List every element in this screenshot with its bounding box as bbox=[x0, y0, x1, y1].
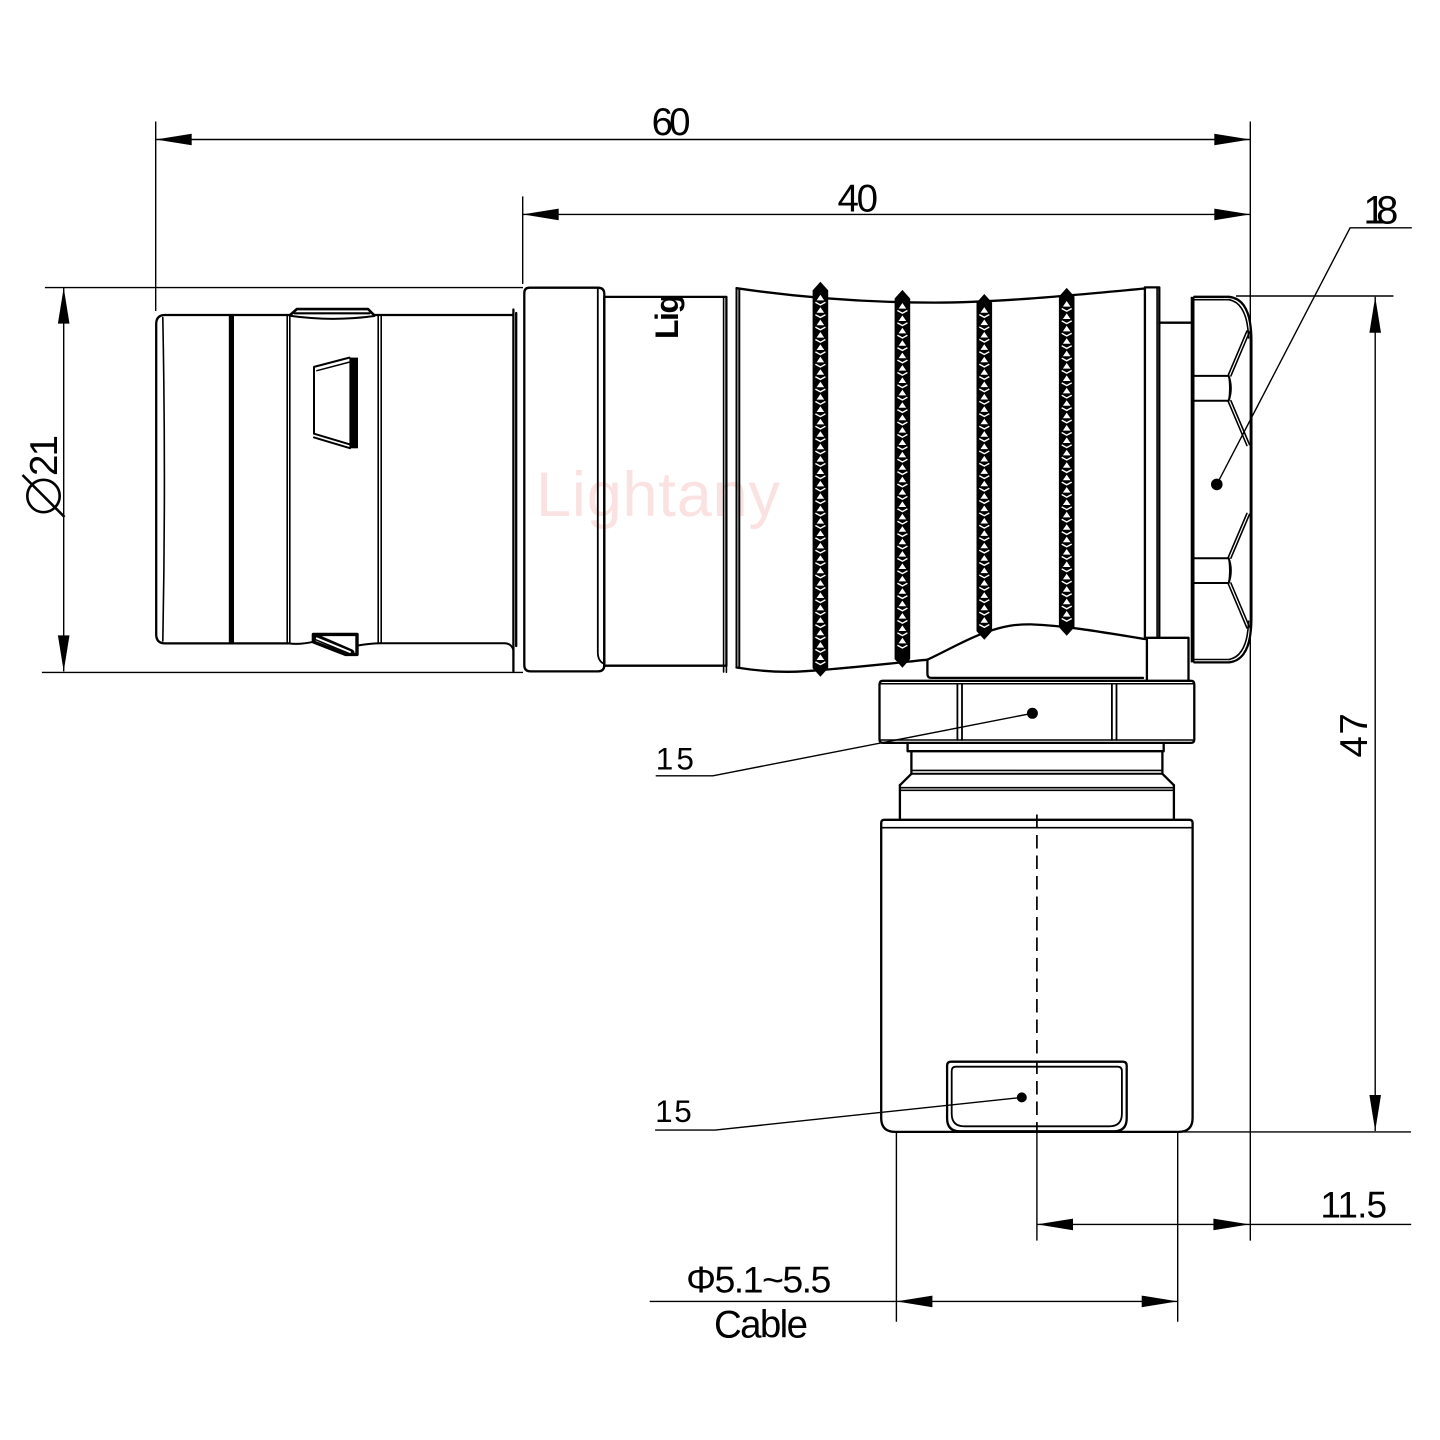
svg-text:21: 21 bbox=[23, 435, 66, 476]
svg-text:18: 18 bbox=[1363, 188, 1398, 232]
svg-text:Cable: Cable bbox=[714, 1304, 808, 1347]
svg-text:Lig: Lig bbox=[649, 294, 685, 339]
svg-text:Φ5.1~5.5: Φ5.1~5.5 bbox=[686, 1259, 831, 1301]
svg-text:47: 47 bbox=[1333, 713, 1376, 757]
svg-text:15: 15 bbox=[655, 1093, 692, 1129]
svg-text:Lightany: Lightany bbox=[536, 460, 781, 530]
svg-text:11.5: 11.5 bbox=[1320, 1184, 1387, 1225]
svg-text:40: 40 bbox=[838, 177, 879, 220]
svg-text:60: 60 bbox=[652, 101, 691, 144]
